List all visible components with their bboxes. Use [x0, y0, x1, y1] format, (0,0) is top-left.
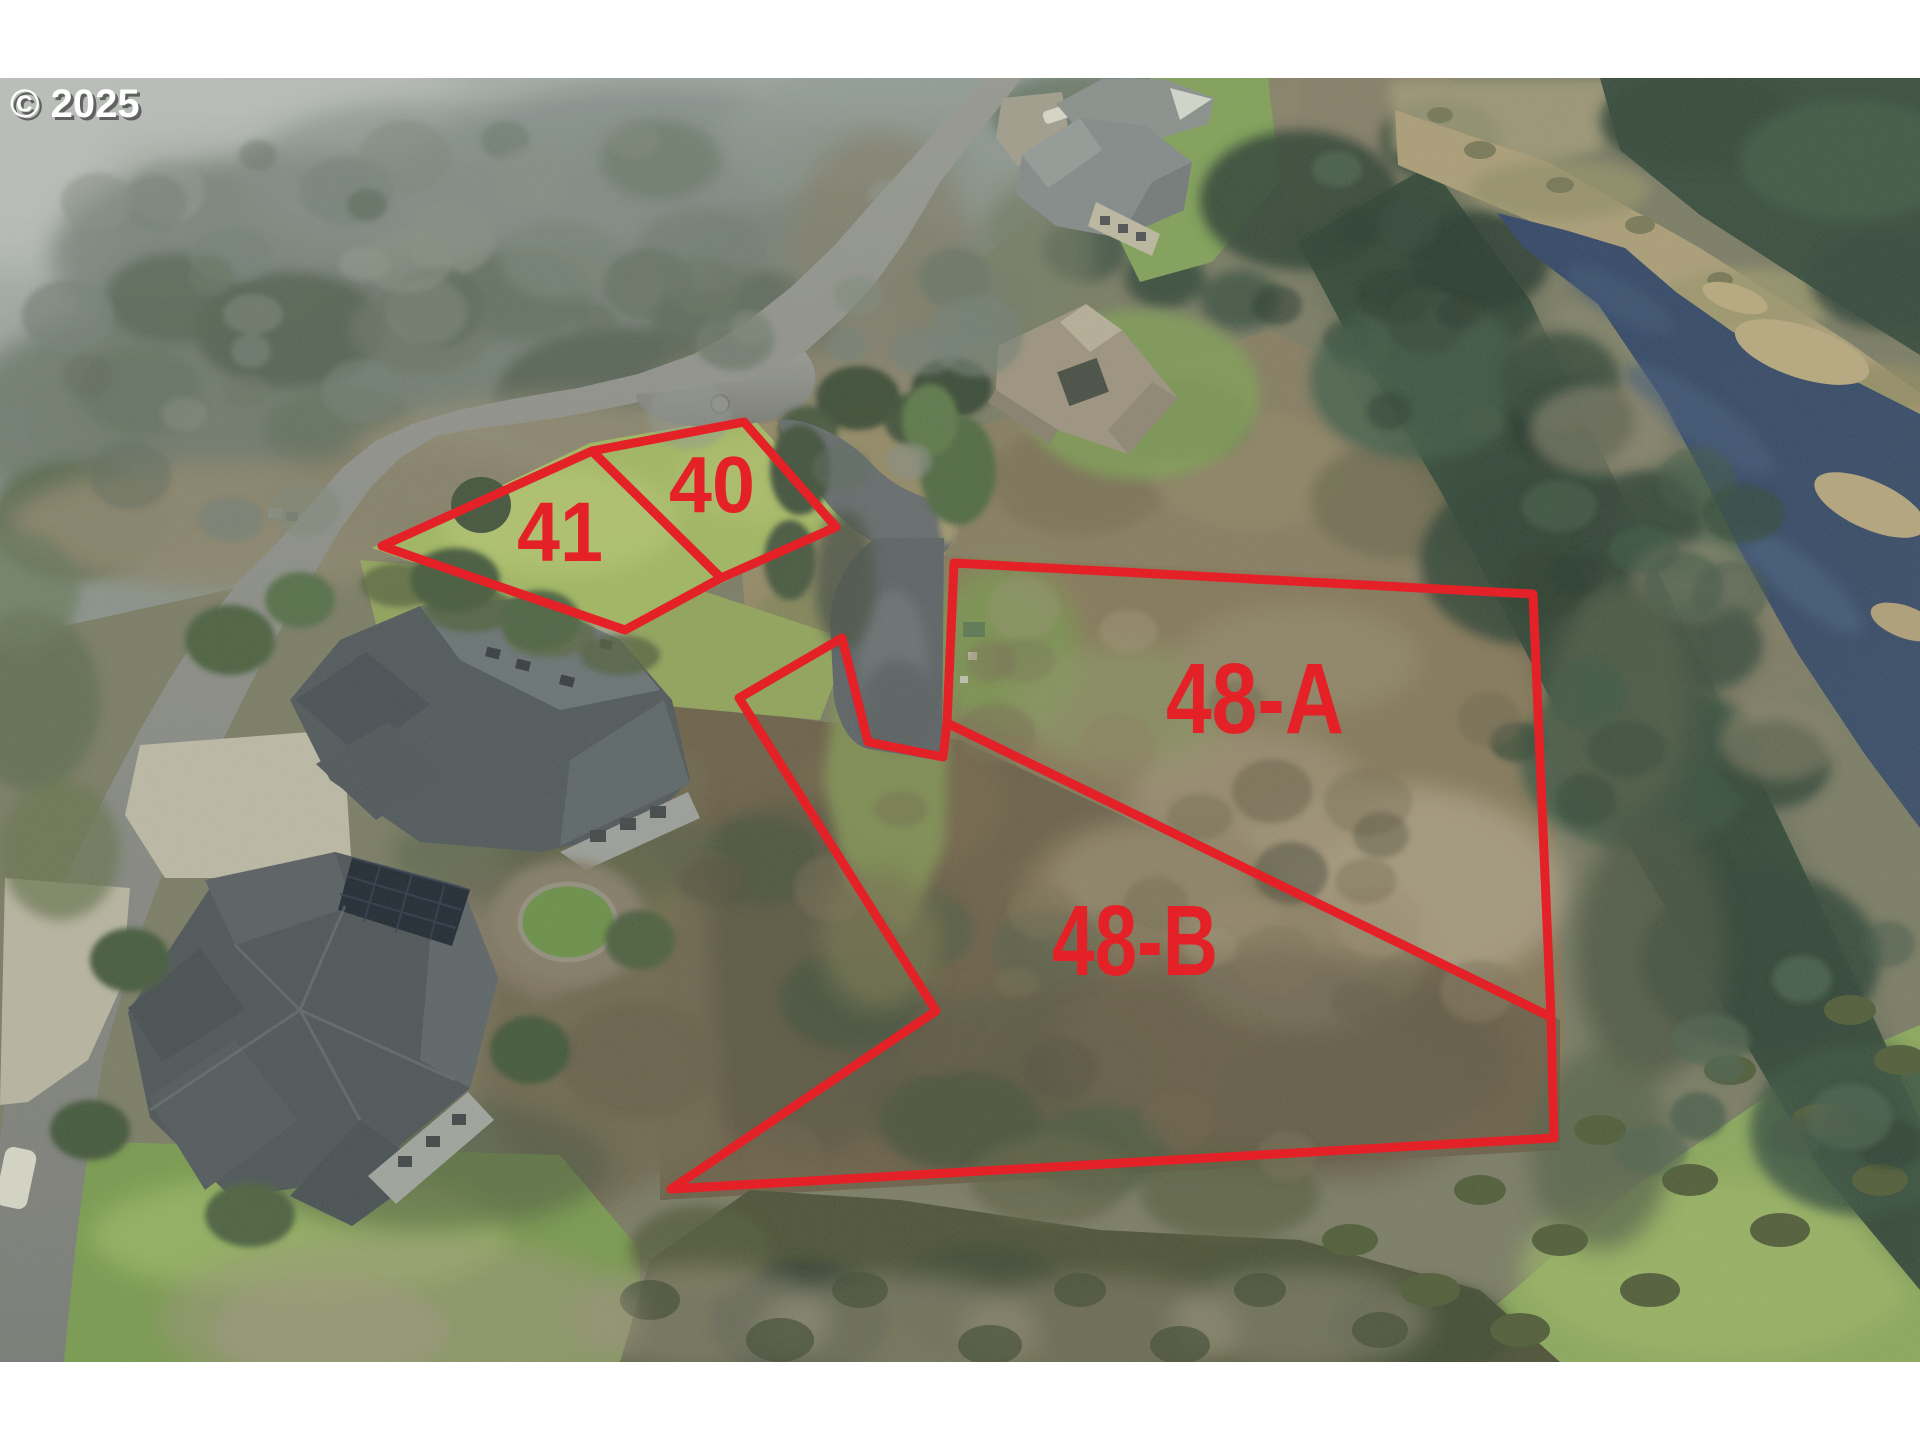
- svg-text:48-A: 48-A: [1166, 643, 1344, 755]
- svg-text:41: 41: [517, 485, 603, 579]
- svg-text:40: 40: [669, 440, 755, 529]
- svg-text:© 2025: © 2025: [10, 82, 140, 126]
- svg-text:48-B: 48-B: [1052, 885, 1218, 997]
